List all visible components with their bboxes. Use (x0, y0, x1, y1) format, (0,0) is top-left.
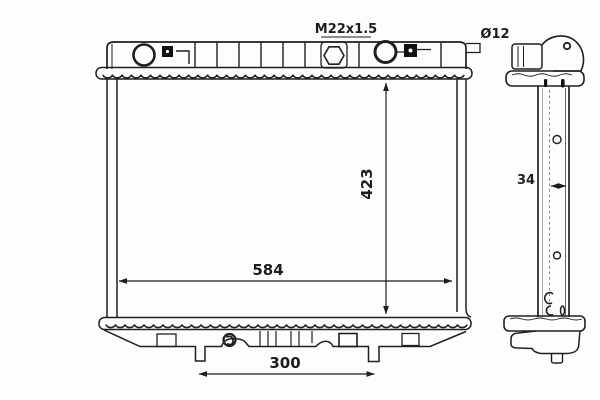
elbow-outlet-icon (542, 36, 584, 71)
bottom-tank-bracket-1 (157, 334, 176, 347)
side-view (504, 36, 585, 363)
side-clip-tab (561, 306, 565, 315)
dimensions: 584 423 300 34 M22x1.5 Ø12 (119, 22, 566, 374)
side-body-hole-1 (553, 136, 561, 144)
core-thickness-dimension-label: 34 (517, 173, 535, 188)
side-bottom-stub (552, 354, 563, 364)
height-dimension-label: 423 (358, 168, 376, 199)
core-bottom-fins (106, 325, 467, 328)
side-clip-hook-2 (546, 306, 553, 315)
elbow-hose-block (512, 44, 542, 69)
core-top-fins (103, 75, 464, 78)
pin-spacing-dimension-label: 300 (269, 354, 300, 372)
drawing-canvas: 584 423 300 34 M22x1.5 Ø12 (0, 0, 600, 400)
side-top-tab-1 (544, 79, 547, 87)
side-bottom-tank (511, 331, 580, 354)
bottom-tank-ribs (260, 331, 312, 346)
elbow-bolt-icon (564, 43, 570, 49)
thread-label: M22x1.5 (315, 22, 377, 37)
width-dimension-label: 584 (252, 261, 283, 279)
side-top-tab-2 (561, 79, 565, 88)
front-view (96, 42, 480, 362)
mounting-clip-icon (176, 51, 189, 64)
sensor-plug-left-pin (166, 50, 169, 53)
sensor-plug-right-pin (409, 49, 413, 53)
filler-neck-icon (134, 45, 155, 66)
side-body-hole-2 (554, 252, 561, 259)
core-right-side-panel (457, 79, 471, 317)
side-clip-hook-1 (545, 293, 553, 304)
sensor-port-icon (375, 42, 396, 63)
bottom-tank-bracket-2 (339, 334, 357, 347)
filler-cap-hex-icon (324, 47, 344, 64)
side-bottom-flange-wave (510, 318, 582, 320)
core-left-side-panel (107, 79, 117, 318)
side-top-flange-wave (512, 74, 572, 77)
elbow-hose-ribs (518, 46, 524, 67)
inlet-diameter-label: Ø12 (480, 27, 509, 42)
bottom-tank-bracket-3 (402, 334, 419, 346)
radiator-technical-drawing: 584 423 300 34 M22x1.5 Ø12 (0, 0, 600, 400)
inlet-pipe-icon (466, 44, 480, 53)
